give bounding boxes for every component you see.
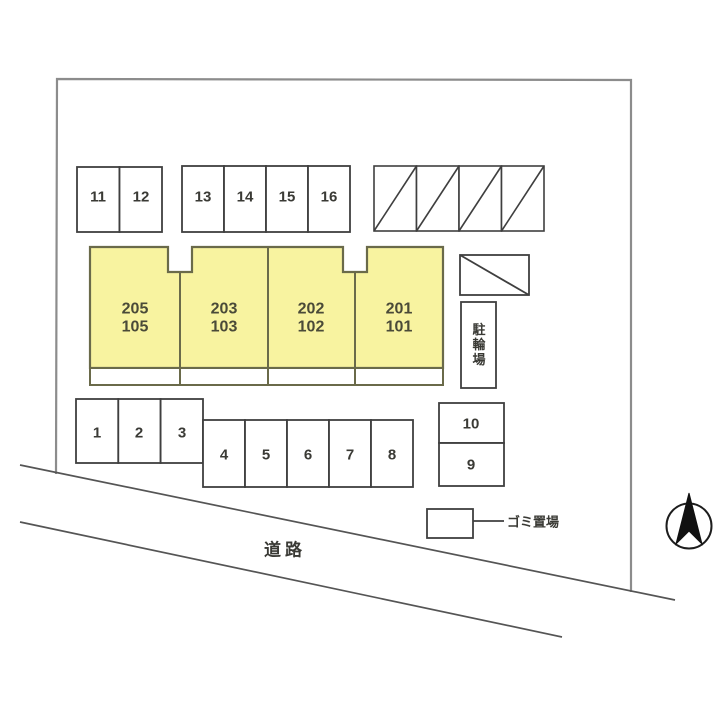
garbage-area: [427, 509, 504, 538]
garbage-area-box: [427, 509, 473, 538]
unit-upper-number: 203: [211, 300, 238, 318]
unit-upper-number: 202: [298, 300, 325, 318]
parking-space-11-label: 11: [90, 190, 106, 205]
parking-space-5-label: 5: [262, 448, 270, 463]
unit-205-105-label: 205 105: [122, 300, 149, 335]
diagonal-marked-area: [460, 255, 529, 295]
site-plan-canvas: [0, 0, 720, 720]
garbage-area-label: ゴミ置場: [507, 512, 559, 531]
hatched-parking-row: [374, 166, 544, 231]
parking-space-4-label: 4: [220, 448, 228, 463]
parking-space-1-label: 1: [93, 426, 101, 441]
parking-space-3-label: 3: [178, 426, 186, 441]
unit-lower-number: 102: [298, 318, 325, 336]
parking-space-2-label: 2: [135, 426, 143, 441]
parking-space-15-label: 15: [279, 190, 296, 205]
unit-lower-number: 105: [122, 318, 149, 336]
unit-lower-number: 101: [386, 318, 413, 336]
unit-upper-number: 205: [122, 300, 149, 318]
parking-space-16-label: 16: [321, 190, 338, 205]
north-arrow: [676, 493, 702, 544]
road-label: 道路: [264, 536, 306, 561]
unit-201-101-label: 201 101: [386, 300, 413, 335]
parking-space-14-label: 14: [237, 190, 254, 205]
unit-203-103-label: 203 103: [211, 300, 238, 335]
unit-202-102-label: 202 102: [298, 300, 325, 335]
parking-space-12-label: 12: [133, 190, 150, 205]
parking-space-10-label: 10: [463, 417, 480, 432]
site-plan: 11 12 13 14 15 16 205 105 203 103 202 10…: [0, 0, 720, 720]
unit-upper-number: 201: [386, 300, 413, 318]
parking-space-7-label: 7: [346, 448, 354, 463]
parking-space-9-label: 9: [467, 458, 475, 473]
bicycle-parking-label: 駐輪場: [469, 323, 488, 368]
building-balcony-strip: [90, 368, 443, 385]
unit-lower-number: 103: [211, 318, 238, 336]
parking-space-8-label: 8: [388, 448, 396, 463]
parking-space-6-label: 6: [304, 448, 312, 463]
north-compass-icon: [667, 493, 712, 549]
parking-space-13-label: 13: [195, 190, 212, 205]
